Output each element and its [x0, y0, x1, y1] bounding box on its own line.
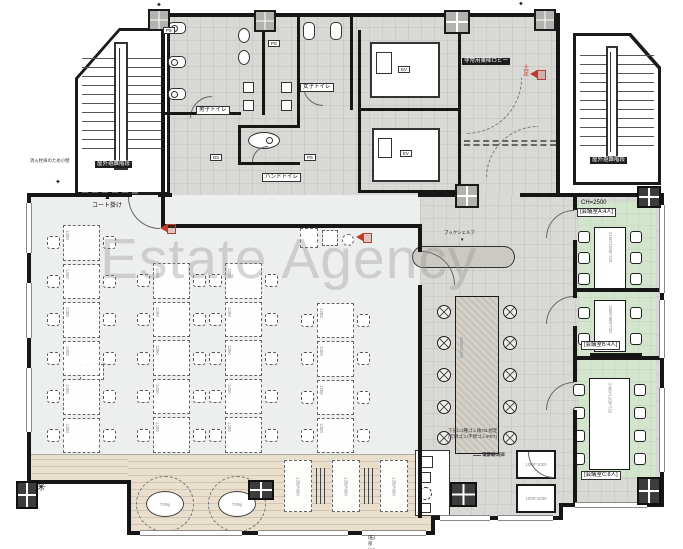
plant-icon: ✳ — [36, 480, 46, 494]
stool — [503, 305, 517, 319]
toilet-icon — [303, 22, 315, 40]
desk-dim-label: 1200 — [319, 423, 324, 433]
office-chair — [209, 390, 222, 403]
wall-sk-bottom — [238, 162, 300, 165]
conference-chair — [578, 231, 590, 243]
window — [659, 205, 665, 293]
office-desk: 1200 — [317, 380, 354, 415]
window — [498, 515, 553, 521]
office-desk: 1200 — [153, 263, 190, 299]
desk-dim-label: 1200 — [65, 230, 70, 240]
coat-rack-label: コート掛け — [92, 203, 122, 210]
toilet-icon — [330, 22, 342, 40]
window — [140, 530, 242, 536]
office-chair — [265, 313, 278, 326]
office-chair — [357, 352, 370, 365]
doso-marker-label: 土足 — [521, 64, 528, 76]
desk-dim-label: 1200 — [227, 384, 232, 394]
office-chair — [301, 429, 314, 442]
office-desk: 1200 — [153, 302, 190, 338]
wall-core-leftside — [161, 13, 165, 195]
deck-boundary-line — [28, 454, 420, 455]
elevator-label: EV — [398, 66, 410, 73]
wall-sk-left — [238, 125, 241, 165]
sink-icon — [243, 82, 254, 93]
table-dim-label: 2400*1200*720 — [608, 383, 613, 413]
desk-dim-label: 1200 — [65, 423, 70, 433]
office-desk: 1200 — [225, 302, 262, 338]
standing-counter: 1350*600 — [380, 460, 408, 512]
office-chair — [301, 391, 314, 404]
office-desk: 1200 — [225, 379, 262, 415]
office-chair — [265, 274, 278, 287]
office-desk: 1200 — [225, 340, 262, 376]
office-chair — [357, 391, 370, 404]
wall-core-top — [161, 13, 560, 17]
standing-counter: 1350*600 — [332, 460, 360, 512]
wall-womens-right — [350, 15, 353, 110]
bottom-trash-note-line2: (缶) — [368, 535, 375, 541]
toilet-bowl-icon — [171, 59, 178, 66]
urinal-icon — [238, 50, 250, 65]
bookshelf-label: ブックシェルフ — [444, 231, 475, 236]
window — [258, 530, 348, 536]
desk-dim-label: 1200 — [65, 307, 70, 317]
printer-station — [322, 230, 338, 246]
conference-chair — [578, 273, 590, 285]
office-chair — [193, 352, 206, 365]
coat-rack-marker: ▲ — [104, 194, 111, 202]
fire-shutter-line — [464, 144, 556, 146]
conference-chair — [630, 231, 642, 243]
stool — [437, 400, 451, 414]
office-chair — [209, 429, 222, 442]
wall-step-left — [127, 480, 131, 535]
window — [659, 388, 665, 472]
desk-dim-label: 1200 — [227, 307, 232, 317]
window — [26, 203, 32, 253]
office-chair — [193, 390, 206, 403]
sink-icon — [281, 100, 292, 111]
survey-mark-icon: ✦ — [518, 0, 524, 8]
wall-wing-left-3 — [573, 326, 577, 382]
conference-table: 2100*1050*720 — [594, 227, 626, 289]
ps-label: PS — [268, 40, 280, 47]
desk-dim-label: 1200 — [155, 268, 160, 278]
conf-b-label: [会議室B:4人] — [581, 341, 620, 350]
stair-left-label: 屋外避難階段 — [95, 161, 132, 168]
office-desk: 1200 — [63, 341, 100, 377]
office-desk: 1200 — [153, 340, 190, 376]
storage-dim-label: 1000*1000 — [525, 496, 546, 501]
elevator-label: EV — [400, 150, 412, 157]
office-chair — [265, 390, 278, 403]
office-chair — [137, 429, 150, 442]
standing-counter: 1350*600 — [284, 460, 312, 512]
structural-column — [450, 482, 477, 507]
round-table-dim: 700φ — [232, 502, 242, 507]
office-chair — [265, 429, 278, 442]
desk-dim-label: 1200 — [155, 307, 160, 317]
sink-icon — [243, 100, 254, 111]
wall-office-right-1 — [418, 224, 422, 252]
office-chair — [137, 313, 150, 326]
office-chair — [137, 352, 150, 365]
desk-dim-label: 1200 — [227, 422, 232, 432]
ps-label: PS — [304, 154, 316, 161]
office-chair — [103, 236, 116, 249]
table-dim-label: 2100*1050*720 — [608, 232, 613, 262]
fire-shutter-line — [464, 140, 556, 142]
office-desk: 1200 — [153, 417, 190, 453]
office-desk: 1200 — [225, 417, 262, 453]
desk-dim-label: 1200 — [155, 345, 160, 355]
conference-chair — [634, 453, 646, 465]
womens-toilet-label: 女子トイレ — [300, 83, 334, 92]
structural-column — [637, 477, 661, 505]
bookshelf-arrow: ▼ — [460, 238, 464, 243]
counter-dim: 1350*600 — [296, 477, 301, 496]
stair-rail-left — [114, 42, 128, 170]
kitchen-item-label: 下部:冷蔵庫 — [482, 452, 505, 458]
stair-rail-right — [606, 46, 618, 158]
wall-core-rightside — [556, 13, 560, 195]
survey-mark-icon: ✦ — [55, 178, 61, 186]
structural-column — [16, 481, 38, 509]
conference-chair — [630, 252, 642, 264]
pipe-shaft-box — [534, 9, 556, 31]
office-chair — [193, 429, 206, 442]
office-chair — [357, 314, 370, 327]
office-chair — [209, 352, 222, 365]
office-chair — [47, 429, 60, 442]
office-chair — [103, 390, 116, 403]
stool — [503, 368, 517, 382]
printer-station — [300, 228, 318, 248]
office-desk: 1200 — [317, 418, 354, 453]
desk-dim-label: 1200 — [319, 385, 324, 395]
office-chair — [209, 313, 222, 326]
office-chair — [357, 429, 370, 442]
conf-c-label: [会議室C:8人] — [581, 471, 621, 480]
desk-dim-label: 1200 — [227, 268, 232, 278]
stool — [437, 305, 451, 319]
fire-extinguisher-marker — [160, 224, 167, 232]
wall-wash-divider — [297, 15, 300, 125]
fire-extinguisher-marker — [530, 70, 537, 78]
desk-dim-label: 1200 — [65, 346, 70, 356]
office-desk: 1200 — [63, 302, 100, 338]
desk-dim-label: 1200 — [65, 269, 70, 279]
office-chair — [209, 274, 222, 287]
office-chair — [301, 352, 314, 365]
wall-corridor-top-2 — [520, 193, 577, 197]
wall-ev-divider — [358, 108, 461, 111]
office-chair — [193, 313, 206, 326]
office-chair — [103, 429, 116, 442]
table-dim-label: 1500*900*720 — [608, 305, 613, 333]
toilet-bowl-icon — [171, 91, 178, 98]
conference-chair — [630, 333, 642, 345]
storage-unit: 1000*1000 — [516, 484, 556, 513]
office-desk: 1200 — [63, 379, 100, 415]
desk-dim-label: 1200 — [227, 345, 232, 355]
stair-right-label: 屋外避難階段 — [590, 157, 627, 164]
window — [659, 300, 665, 358]
office-desk: 1200 — [63, 418, 100, 454]
office-chair — [103, 313, 116, 326]
office-chair — [103, 275, 116, 288]
hand-toilet-label: ハンドトイレ — [262, 173, 301, 182]
survey-mark-icon: ✦ — [156, 1, 162, 9]
stool-dashed — [342, 234, 354, 246]
stool — [437, 368, 451, 382]
trash-note-line2: (可燃ゴミ/不燃ゴミ/PET) — [448, 434, 497, 440]
elevator-counterweight — [378, 138, 392, 158]
conference-chair — [578, 307, 590, 319]
window — [26, 283, 32, 338]
counter-partition — [364, 468, 376, 504]
hydrant-note: 消火栓扉のため小壁 — [30, 158, 72, 164]
stool — [503, 400, 517, 414]
counter-partition — [316, 468, 328, 504]
emergency-lobby-label: 非常用乗降ロビー — [462, 58, 510, 65]
conference-chair — [630, 273, 642, 285]
ps-label: PS — [163, 27, 175, 34]
round-table-dim: 700φ — [160, 502, 170, 507]
window — [440, 515, 490, 521]
office-chair — [47, 390, 60, 403]
desk-dim-label: 1200 — [65, 384, 70, 394]
conf-a-label: [会議室A:4人] — [577, 208, 616, 217]
floor-plan-canvas: 屋外避難階段 屋外避難階段 ブックシェルフ ▼ 下部に3種ゴミ箱7 — [0, 0, 683, 549]
structural-column — [637, 186, 661, 208]
stool — [437, 336, 451, 350]
office-chair — [47, 313, 60, 326]
wall-ev-bottom — [358, 190, 461, 193]
drain-icon — [266, 137, 273, 144]
elevator-counterweight — [376, 52, 392, 74]
wall-office-topleft — [27, 193, 77, 197]
ds-label: DS — [210, 154, 222, 161]
stool — [503, 336, 517, 350]
pipe-shaft-box — [455, 184, 479, 208]
mens-toilet-label: 男子トイレ — [196, 106, 230, 115]
office-chair — [301, 314, 314, 327]
pipe-shaft-box — [254, 10, 276, 32]
conference-chair — [634, 430, 646, 442]
wall-office-right-2 — [418, 285, 422, 518]
office-desk: 1200 — [63, 264, 100, 300]
desk-dim-label: 1200 — [155, 422, 160, 432]
structural-column — [248, 480, 274, 500]
wall-divider-ab — [575, 288, 662, 292]
office-desk: 1200 — [63, 225, 100, 261]
sink-icon — [281, 82, 292, 93]
office-chair — [137, 274, 150, 287]
conference-chair — [573, 384, 585, 396]
trash-note: 下部に3種ゴミ箱70L想定 (可燃ゴミ/不燃ゴミ/PET) — [448, 428, 534, 434]
urinal-icon — [238, 28, 250, 43]
round-table: 700φ — [146, 491, 184, 517]
office-desk: 1200 — [153, 379, 190, 415]
desk-dim-label: 1200 — [155, 384, 160, 394]
movable-partition — [590, 353, 642, 360]
office-chair — [137, 390, 150, 403]
office-desk: 1200 — [317, 303, 354, 338]
island-dim-label: 3500*1200 — [459, 337, 464, 358]
desk-dim-label: 1200 — [319, 308, 324, 318]
office-chair — [193, 274, 206, 287]
office-chair — [265, 352, 278, 365]
office-desk: 1200 — [317, 341, 354, 376]
pipe-shaft-box — [444, 10, 470, 34]
conference-chair — [578, 252, 590, 264]
office-desk: 1200 — [225, 263, 262, 299]
conference-chair — [634, 384, 646, 396]
counter-dim: 1350*600 — [344, 477, 349, 496]
wall-ev-right — [458, 30, 461, 192]
conference-chair — [630, 307, 642, 319]
window — [26, 368, 32, 432]
office-chair — [103, 352, 116, 365]
wall-sk-top — [238, 125, 300, 128]
office-chair — [47, 352, 60, 365]
fire-extinguisher-marker — [356, 233, 363, 241]
office-chair — [47, 236, 60, 249]
wall-ev-left — [358, 30, 361, 192]
ceiling-height-label: CH=2500 — [581, 200, 607, 207]
office-chair — [47, 275, 60, 288]
wall-core-bottom — [161, 224, 422, 228]
wall-wing-left-4 — [573, 410, 577, 506]
conference-chair — [634, 407, 646, 419]
counter-dim: 1350*600 — [392, 477, 397, 496]
conference-table: 2400*1200*720 — [589, 378, 630, 470]
wall-core-left-lower — [161, 193, 165, 227]
desk-dim-label: 1200 — [319, 346, 324, 356]
